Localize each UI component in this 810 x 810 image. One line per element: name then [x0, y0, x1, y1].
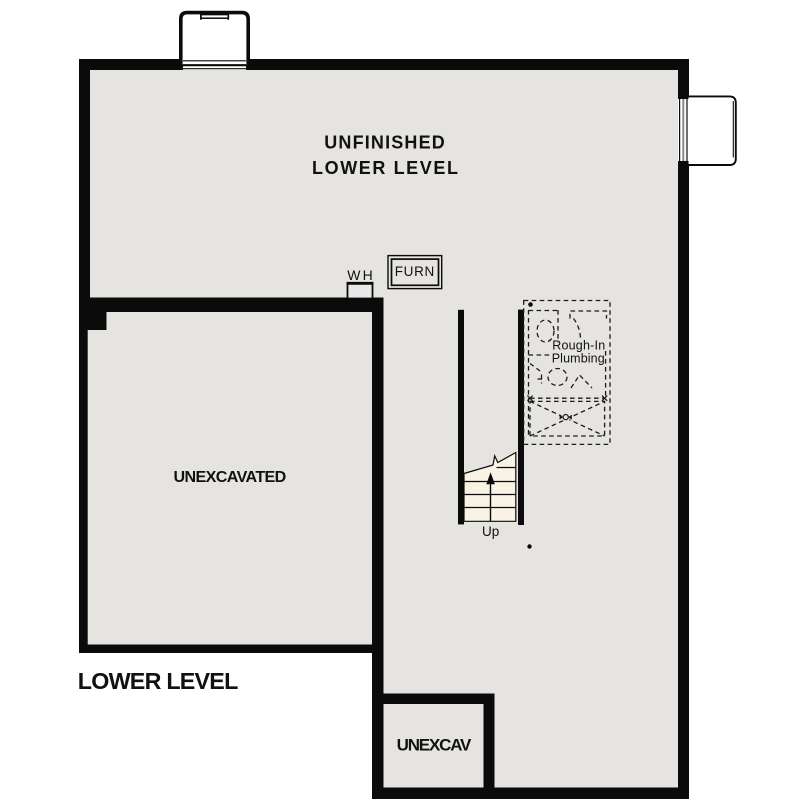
svg-text:Plumbing: Plumbing	[552, 352, 605, 366]
svg-text:UNEXCAVATED: UNEXCAVATED	[174, 468, 287, 486]
svg-text:FURN: FURN	[395, 264, 435, 279]
svg-text:UNEXCAV: UNEXCAV	[397, 735, 472, 754]
svg-text:LOWER LEVEL: LOWER LEVEL	[312, 158, 458, 178]
svg-text:LOWER LEVEL: LOWER LEVEL	[78, 668, 239, 694]
svg-text:Up: Up	[482, 524, 499, 539]
svg-text:Rough-In: Rough-In	[552, 338, 605, 352]
svg-text:WH: WH	[347, 267, 373, 283]
svg-text:UNFINISHED: UNFINISHED	[324, 133, 445, 153]
